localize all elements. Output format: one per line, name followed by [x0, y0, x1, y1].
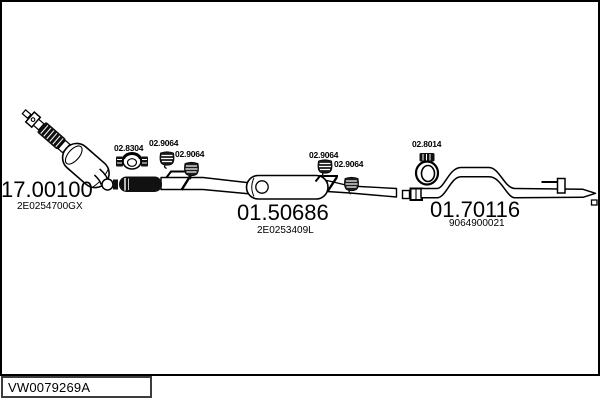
document-code: VW0079269A	[8, 380, 90, 395]
exhaust-parts-diagram-page: 17.00100 2E0254700GX 01.50686 2E0253409L…	[0, 0, 600, 400]
oem-number-catalytic-converter: 2E0254700GX	[17, 202, 83, 212]
rear-pipe-art	[421, 168, 596, 198]
document-code-box: VW0079269A	[1, 376, 152, 398]
pipe-joint-art	[403, 191, 410, 199]
part-number-catalytic-converter[interactable]: 17.00100	[1, 179, 93, 201]
rubber-hanger-icon	[185, 162, 199, 179]
flex-pipe-art	[119, 177, 162, 193]
fitting-number-front-clamp[interactable]: 02.8304	[114, 144, 143, 153]
ring-clamp-icon	[416, 153, 438, 185]
fitting-number-rear-clamp[interactable]: 02.8014	[412, 140, 441, 149]
fitting-number-front-hanger-2[interactable]: 02.9064	[175, 150, 204, 159]
fitting-number-front-hanger-1[interactable]: 02.9064	[149, 139, 178, 148]
oem-number-middle-silencer: 2E0253409L	[257, 226, 314, 236]
oem-number-rear-pipe: 9064900021	[449, 219, 505, 229]
pipe-clamp-icon	[116, 153, 148, 169]
intermediate-pipe-art	[161, 178, 251, 195]
joint-bar-art	[113, 180, 118, 190]
end-tab-art	[592, 200, 598, 205]
rubber-hanger-icon	[160, 152, 174, 169]
silencer-outlet-pipe-art	[327, 181, 397, 198]
fitting-number-mid-hanger-2[interactable]: 02.9064	[334, 160, 363, 169]
rubber-hanger-icon	[318, 160, 332, 177]
middle-silencer-art	[247, 176, 329, 200]
part-number-middle-silencer[interactable]: 01.50686	[237, 202, 329, 224]
flange-ring-art	[102, 179, 113, 190]
